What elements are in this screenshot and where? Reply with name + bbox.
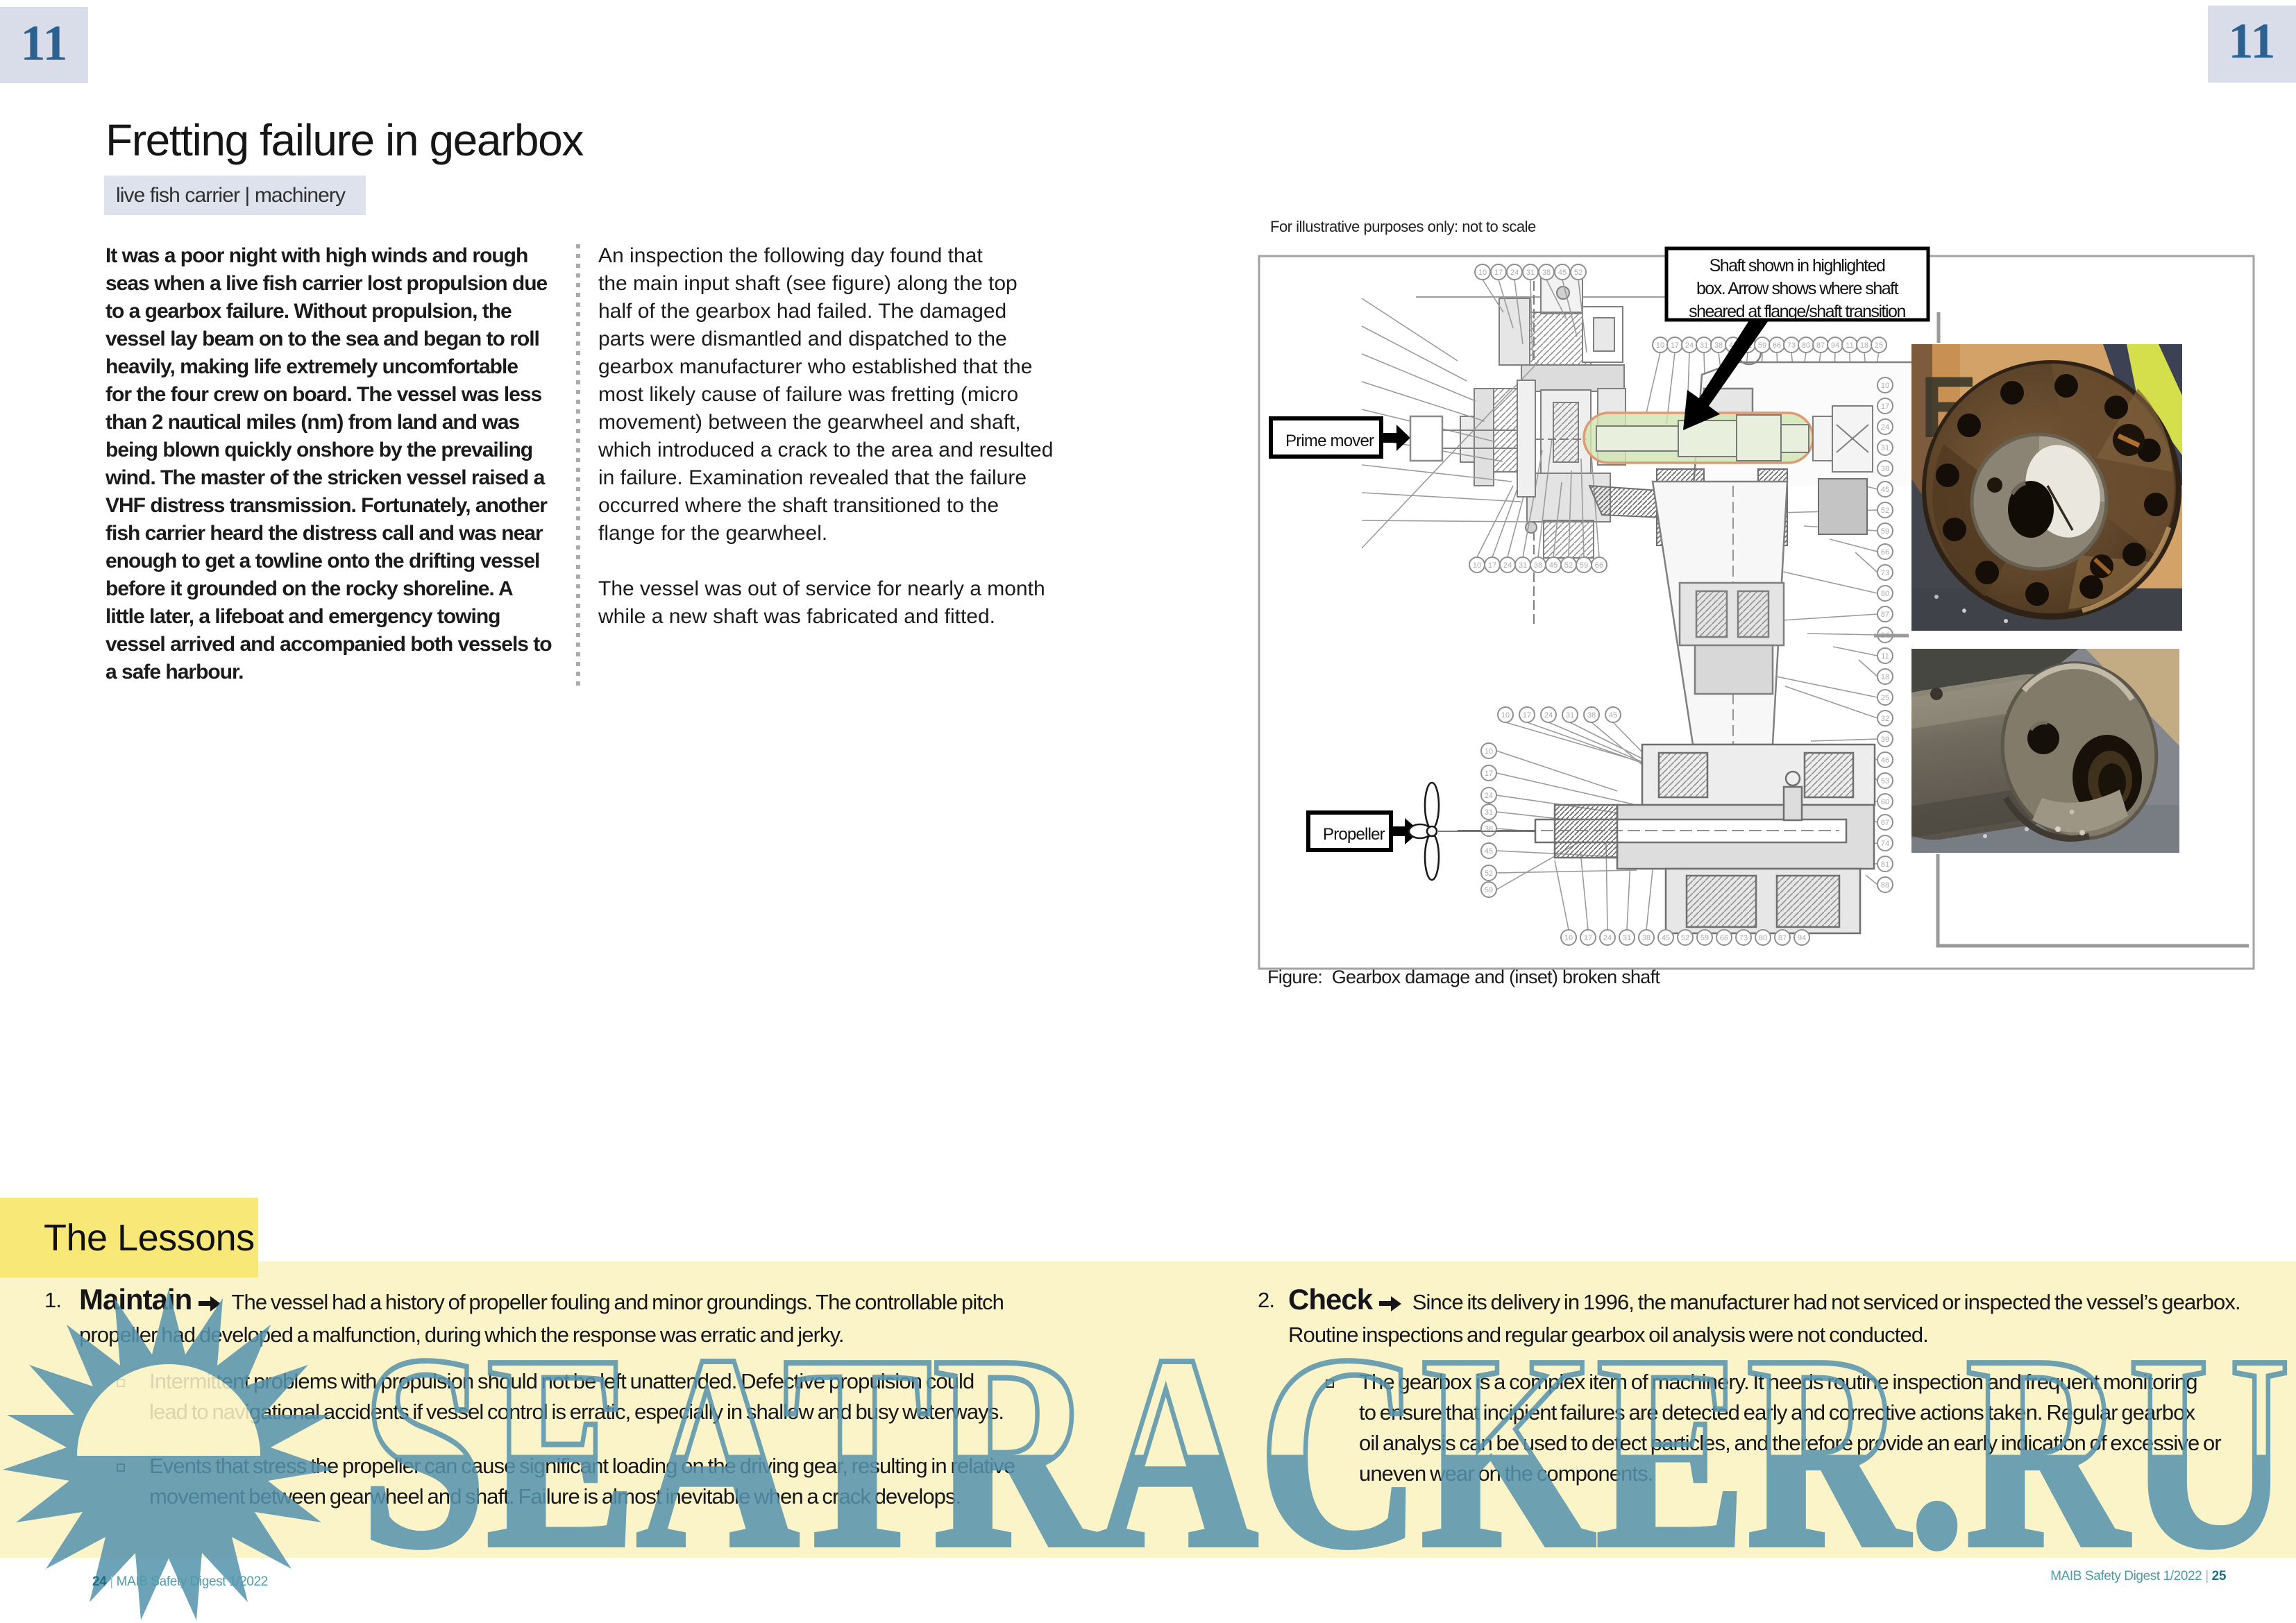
svg-text:45: 45 (1662, 934, 1670, 942)
svg-text:67: 67 (1881, 819, 1889, 827)
svg-text:38: 38 (1714, 341, 1723, 350)
svg-text:52: 52 (1485, 869, 1493, 878)
svg-text:38: 38 (1542, 269, 1551, 277)
svg-text:24: 24 (1503, 561, 1512, 570)
svg-text:17: 17 (1488, 561, 1496, 570)
svg-text:81: 81 (1881, 860, 1889, 869)
svg-text:10: 10 (1501, 711, 1510, 720)
svg-text:11: 11 (1881, 652, 1889, 661)
svg-text:18: 18 (1860, 341, 1868, 350)
svg-text:24: 24 (1485, 792, 1493, 800)
svg-text:74: 74 (1881, 840, 1889, 848)
svg-text:52: 52 (1574, 269, 1582, 277)
svg-text:59: 59 (1485, 886, 1493, 894)
svg-text:88: 88 (1881, 881, 1889, 890)
svg-text:31: 31 (1519, 561, 1527, 570)
svg-text:10: 10 (1473, 561, 1481, 570)
svg-text:Shaft shown in highlighted: Shaft shown in highlighted (1710, 256, 1885, 275)
svg-text:87: 87 (1816, 341, 1825, 350)
svg-text:73: 73 (1739, 934, 1748, 942)
svg-text:80: 80 (1881, 590, 1889, 598)
svg-text:52: 52 (1564, 561, 1573, 570)
svg-text:10: 10 (1485, 747, 1493, 756)
svg-text:87: 87 (1778, 934, 1787, 942)
svg-text:Propeller: Propeller (1323, 825, 1385, 844)
svg-text:17: 17 (1485, 770, 1493, 778)
svg-text:Prime mover: Prime mover (1285, 432, 1374, 450)
svg-text:10: 10 (1881, 382, 1889, 390)
svg-text:24: 24 (1510, 269, 1519, 277)
svg-text:sheared at flange/shaft transi: sheared at flange/shaft transition (1689, 302, 1905, 321)
svg-text:31: 31 (1485, 808, 1493, 817)
svg-text:24: 24 (1685, 341, 1694, 350)
svg-text:10: 10 (1564, 934, 1573, 942)
svg-text:31: 31 (1623, 934, 1631, 942)
svg-text:31: 31 (1700, 341, 1708, 350)
svg-text:17: 17 (1584, 934, 1592, 942)
svg-text:80: 80 (1802, 341, 1810, 350)
svg-text:18: 18 (1881, 673, 1889, 681)
svg-text:94: 94 (1831, 341, 1839, 350)
svg-text:24: 24 (1544, 711, 1553, 720)
svg-text:17: 17 (1523, 711, 1531, 720)
svg-text:73: 73 (1787, 341, 1796, 350)
svg-text:66: 66 (1720, 934, 1728, 942)
svg-text:38: 38 (1881, 465, 1889, 473)
svg-text:45: 45 (1549, 561, 1558, 570)
svg-text:87: 87 (1881, 611, 1889, 619)
svg-text:38: 38 (1485, 825, 1493, 833)
svg-text:24: 24 (1881, 423, 1889, 432)
svg-text:SEATRACKER.RU: SEATRACKER.RU (361, 1298, 2290, 1605)
svg-text:25: 25 (1875, 341, 1883, 350)
svg-text:39: 39 (1881, 736, 1889, 744)
svg-text:11: 11 (1846, 341, 1853, 350)
svg-text:73: 73 (1881, 569, 1889, 577)
svg-text:17: 17 (1881, 402, 1889, 411)
svg-text:45: 45 (1881, 486, 1889, 494)
svg-text:52: 52 (1881, 507, 1889, 515)
svg-text:38: 38 (1642, 934, 1651, 942)
svg-text:31: 31 (1881, 444, 1889, 452)
svg-text:59: 59 (1758, 341, 1766, 350)
svg-text:80: 80 (1759, 934, 1767, 942)
svg-text:59: 59 (1700, 934, 1709, 942)
svg-text:52: 52 (1681, 934, 1689, 942)
svg-text:45: 45 (1485, 847, 1493, 856)
svg-text:46: 46 (1881, 756, 1889, 765)
svg-text:38: 38 (1587, 711, 1596, 720)
svg-text:94: 94 (1798, 934, 1806, 942)
svg-text:66: 66 (1595, 561, 1603, 570)
svg-text:59: 59 (1580, 561, 1588, 570)
svg-text:32: 32 (1881, 715, 1889, 723)
svg-text:box. Arrow shows where shaft: box. Arrow shows where shaft (1696, 279, 1899, 298)
svg-text:10: 10 (1478, 269, 1487, 277)
svg-text:66: 66 (1881, 548, 1889, 556)
svg-text:59: 59 (1881, 527, 1889, 536)
svg-text:24: 24 (1603, 934, 1612, 942)
svg-text:10: 10 (1656, 341, 1664, 350)
svg-text:17: 17 (1671, 341, 1679, 350)
svg-text:31: 31 (1566, 711, 1574, 720)
svg-text:38: 38 (1534, 561, 1542, 570)
svg-text:25: 25 (1881, 694, 1889, 702)
svg-text:66: 66 (1773, 341, 1781, 350)
svg-text:31: 31 (1526, 269, 1535, 277)
svg-text:53: 53 (1881, 777, 1889, 785)
svg-text:17: 17 (1494, 269, 1503, 277)
svg-text:45: 45 (1558, 269, 1567, 277)
svg-text:60: 60 (1881, 798, 1889, 806)
svg-text:45: 45 (1609, 711, 1617, 720)
